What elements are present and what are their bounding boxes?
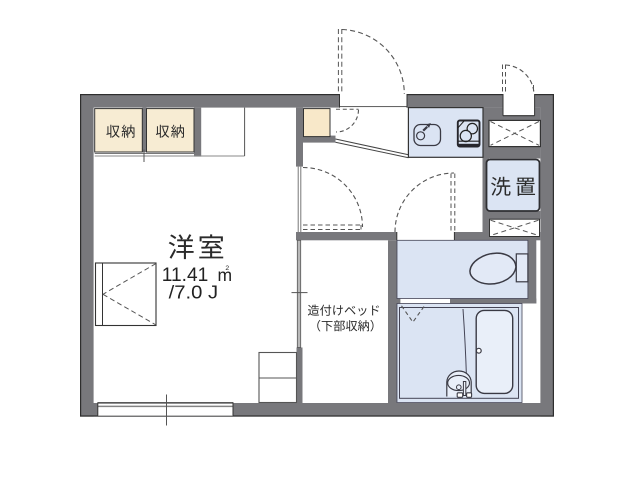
svg-text:2: 2 bbox=[225, 265, 229, 272]
svg-text:/7.0 J: /7.0 J bbox=[169, 281, 219, 302]
